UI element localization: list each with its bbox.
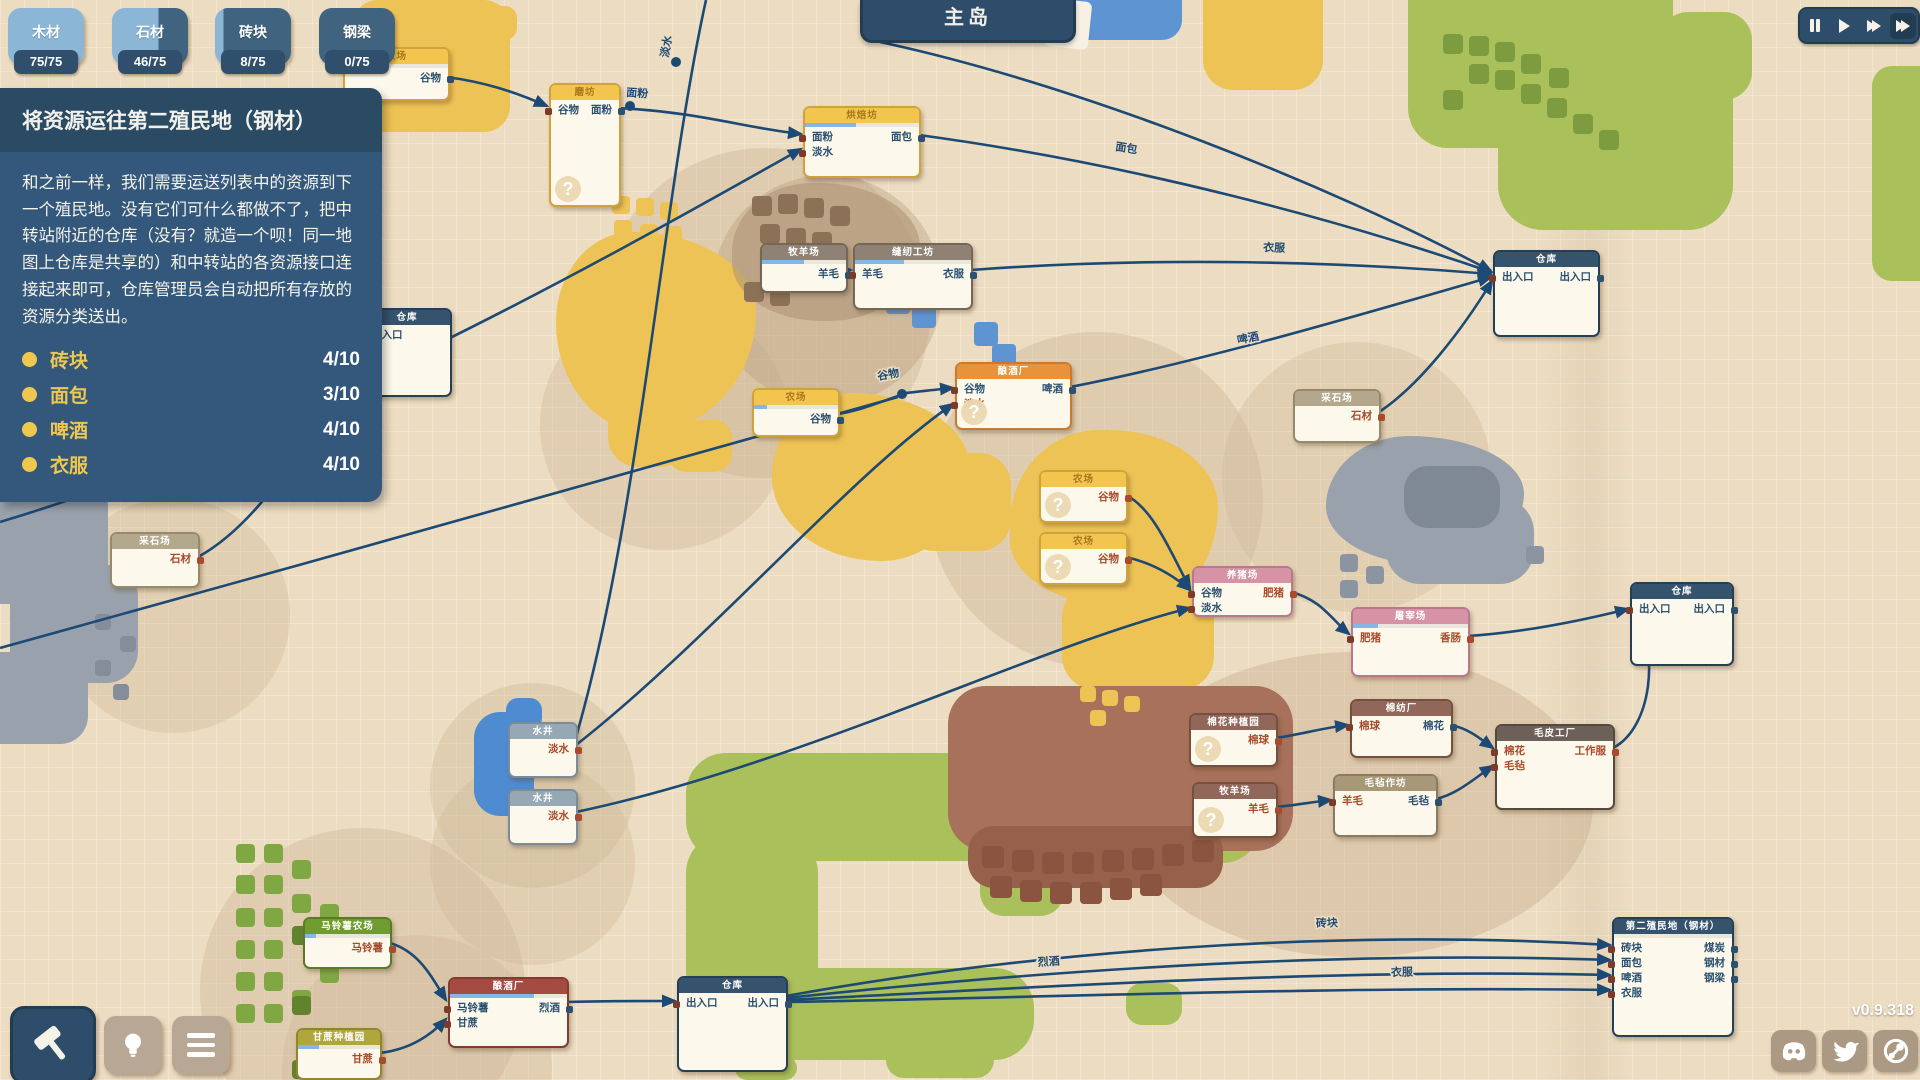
- node-row: 淡水: [805, 145, 919, 160]
- lightbulb-icon: [117, 1029, 149, 1061]
- resource-wire: [786, 940, 1610, 996]
- output-label: 煤炭: [1704, 941, 1725, 956]
- input-port[interactable]: [1346, 724, 1353, 731]
- goal-progress: 3/10: [323, 384, 360, 406]
- quest-goal-3: 衣服4/10: [22, 447, 360, 482]
- quest-description: 和之前一样，我们需要运送列表中的资源到下一个殖民地。没有它们可什么都做不了，把中…: [0, 152, 382, 336]
- node-sheepfarm-a[interactable]: 牧羊场羊毛: [760, 243, 848, 293]
- node-title: 甘蔗种植园: [298, 1030, 380, 1045]
- node-title: 农场: [1041, 472, 1126, 487]
- output-label: 工作服: [1575, 744, 1607, 759]
- output-port[interactable]: [1290, 591, 1297, 598]
- input-label: 羊毛: [1342, 794, 1363, 809]
- resource-wire: [567, 1001, 675, 1002]
- pause-button[interactable]: [1802, 13, 1828, 39]
- input-label: 出入口: [1639, 602, 1671, 617]
- node-row: 面包钢材: [1614, 956, 1732, 971]
- resource-wire: [446, 77, 547, 106]
- input-port[interactable]: [1188, 606, 1195, 613]
- output-label: 石材: [1351, 409, 1372, 424]
- menu-button[interactable]: [172, 1016, 230, 1074]
- input-label: 马铃薯: [457, 1001, 489, 1016]
- wire-junction: [897, 389, 907, 399]
- input-label: 淡水: [1201, 601, 1222, 616]
- goal-bullet-icon: [22, 352, 37, 367]
- output-label: 淡水: [548, 809, 569, 824]
- input-label: 出入口: [1502, 270, 1534, 285]
- output-port[interactable]: [837, 417, 844, 424]
- node-title: 毛皮工厂: [1497, 726, 1613, 741]
- input-port[interactable]: [1329, 799, 1336, 806]
- output-label: 啤酒: [1042, 382, 1063, 397]
- output-label: 钢材: [1704, 956, 1725, 971]
- wire-label: 烈酒: [1037, 953, 1060, 969]
- node-row: 砖块煤炭: [1614, 941, 1732, 956]
- node-title: 马铃薯农场: [305, 919, 390, 934]
- output-label: 棉球: [1248, 733, 1269, 748]
- output-port[interactable]: [1731, 946, 1738, 953]
- node-fur[interactable]: 毛皮工厂棉花工作服毛毡: [1495, 724, 1615, 810]
- node-title: 仓库: [1495, 252, 1598, 267]
- goal-bullet-icon: [22, 387, 37, 402]
- output-label: 香肠: [1440, 631, 1461, 646]
- node-row: 啤酒钢梁: [1614, 971, 1732, 986]
- question-icon: ?: [1198, 807, 1224, 833]
- resource-wire: [1126, 557, 1190, 590]
- output-port[interactable]: [1378, 414, 1385, 421]
- input-label: 出入口: [686, 996, 718, 1011]
- output-port[interactable]: [1731, 976, 1738, 983]
- output-label: 谷物: [1098, 490, 1119, 505]
- node-cotton-plant[interactable]: 棉花种植园棉球?: [1189, 713, 1278, 767]
- input-port[interactable]: [545, 108, 552, 115]
- input-label: 衣服: [1621, 986, 1642, 1001]
- node-title: 磨坊: [551, 85, 619, 100]
- node-title: 棉花种植园: [1191, 715, 1276, 730]
- node-title: 毛毡作坊: [1335, 776, 1436, 791]
- resource-wire: [971, 262, 1491, 274]
- resource-count: 8/75: [221, 50, 285, 74]
- goal-label: 砖块: [50, 346, 88, 373]
- input-port[interactable]: [849, 272, 856, 279]
- goal-label: 面包: [50, 381, 88, 408]
- output-label: 羊毛: [1248, 802, 1269, 817]
- output-label: 淡水: [548, 742, 569, 757]
- output-port[interactable]: [197, 557, 204, 564]
- node-cotton-mill[interactable]: 棉纺厂棉球棉花: [1350, 699, 1453, 758]
- resource-wire: [1468, 609, 1628, 636]
- version-label: v0.9.318: [1852, 1002, 1914, 1020]
- node-sugarcane[interactable]: 甘蔗种植园甘蔗: [296, 1028, 382, 1080]
- quest-goal-0: 砖块4/10: [22, 342, 360, 377]
- input-label: 羊毛: [862, 267, 883, 282]
- goal-label: 啤酒: [50, 416, 88, 443]
- node-title: 仓库: [679, 978, 786, 993]
- input-label: 面包: [1621, 956, 1642, 971]
- play-icon: [1839, 19, 1850, 33]
- quest-panel: 将资源运往第二殖民地（钢材） 和之前一样，我们需要运送列表中的资源到下一个殖民地…: [0, 88, 382, 502]
- quest-goal-1: 面包3/10: [22, 377, 360, 412]
- node-row: 淡水: [510, 809, 576, 824]
- input-port[interactable]: [444, 1021, 451, 1028]
- node-well-b[interactable]: 水井淡水: [508, 789, 578, 845]
- node-row: 出入口出入口: [1495, 270, 1598, 285]
- hint-button[interactable]: [104, 1016, 162, 1074]
- output-label: 衣服: [943, 267, 964, 282]
- node-title: 烘焙坊: [805, 108, 919, 123]
- quest-goals: 砖块4/10面包3/10啤酒4/10衣服4/10: [0, 336, 382, 502]
- goal-label: 衣服: [50, 451, 88, 478]
- node-row: 出入口出入口: [679, 996, 786, 1011]
- island-name-banner[interactable]: 主岛: [860, 0, 1076, 43]
- pause-icon: [1810, 19, 1814, 32]
- resource-wire: [1276, 800, 1331, 807]
- speed-controls: [1798, 7, 1920, 44]
- game-map[interactable]: 面粉面包衣服啤酒谷物淡水烈酒砖块衣服 农场谷物磨坊谷物面粉?烘焙坊面粉面包淡水牧…: [0, 0, 1920, 1080]
- build-button[interactable]: [10, 1006, 96, 1080]
- resource-name: 木材: [8, 22, 84, 42]
- node-row: 衣服: [1614, 986, 1732, 1001]
- input-label: 面粉: [812, 130, 833, 145]
- node-title: 屠宰场: [1353, 609, 1468, 624]
- input-label: 棉花: [1504, 744, 1525, 759]
- node-title: 水井: [510, 724, 576, 739]
- output-port[interactable]: [1125, 557, 1132, 564]
- input-port[interactable]: [1608, 976, 1615, 983]
- resource-wire: [1276, 725, 1348, 738]
- node-slaughter[interactable]: 屠宰场肥猪香肠: [1351, 607, 1470, 677]
- output-label: 谷物: [1098, 552, 1119, 567]
- steam-icon: [1881, 1036, 1911, 1066]
- node-warehouse-c[interactable]: 仓库出入口出入口: [1630, 582, 1734, 666]
- node-row: 甘蔗: [298, 1052, 380, 1067]
- resource-name: 砖块: [215, 22, 291, 42]
- output-label: 石材: [170, 552, 191, 567]
- output-label: 棉花: [1423, 719, 1444, 734]
- node-brewery[interactable]: 酿酒厂谷物啤酒淡水?: [955, 362, 1072, 430]
- wire-label: 淡水: [657, 33, 675, 58]
- input-label: 肥猪: [1360, 631, 1381, 646]
- output-label: 出入口: [1560, 270, 1592, 285]
- output-port[interactable]: [785, 1001, 792, 1008]
- question-icon: ?: [961, 399, 987, 425]
- node-title: 养猪场: [1194, 568, 1291, 583]
- node-row: 马铃薯烈酒: [450, 1001, 567, 1016]
- output-port[interactable]: [918, 135, 925, 142]
- goal-progress: 4/10: [323, 454, 360, 476]
- wire-label: 衣服: [1391, 965, 1414, 979]
- input-port[interactable]: [799, 150, 806, 157]
- wire-label: 衣服: [1263, 240, 1286, 255]
- input-label: 淡水: [812, 145, 833, 160]
- node-bakery[interactable]: 烘焙坊面粉面包淡水: [803, 106, 921, 178]
- output-port[interactable]: [1275, 738, 1282, 745]
- input-label: 砖块: [1621, 941, 1642, 956]
- output-label: 毛毡: [1408, 794, 1429, 809]
- input-label: 毛毡: [1504, 759, 1525, 774]
- node-well-a[interactable]: 水井淡水: [508, 722, 578, 778]
- question-icon: ?: [1045, 554, 1071, 580]
- node-row: 肥猪香肠: [1353, 631, 1468, 646]
- input-port[interactable]: [1491, 764, 1498, 771]
- node-title: 缝纫工坊: [855, 245, 971, 260]
- wire-label: 谷物: [876, 365, 900, 383]
- node-row: 羊毛: [762, 267, 846, 282]
- question-icon: ?: [1195, 736, 1221, 762]
- output-label: 谷物: [810, 412, 831, 427]
- resource-count: 0/75: [325, 50, 389, 74]
- node-farm-b[interactable]: 农场谷物: [752, 388, 840, 437]
- input-port[interactable]: [951, 402, 958, 409]
- wire-junction: [625, 101, 635, 111]
- node-row: 毛毡: [1497, 759, 1613, 774]
- node-row: 棉花工作服: [1497, 744, 1613, 759]
- input-port[interactable]: [1608, 991, 1615, 998]
- resource-wire: [390, 943, 446, 1000]
- resource-wire: [919, 135, 1491, 272]
- output-port[interactable]: [566, 1006, 573, 1013]
- node-quarry-a[interactable]: 采石场石材: [110, 532, 200, 588]
- node-felt[interactable]: 毛毡作坊羊毛毛毡: [1333, 774, 1438, 837]
- quest-goal-2: 啤酒4/10: [22, 412, 360, 447]
- twitter-icon: [1831, 1037, 1859, 1065]
- output-label: 烈酒: [539, 1001, 560, 1016]
- resource-wire: [786, 989, 1610, 1002]
- node-title: 棉纺厂: [1352, 701, 1451, 716]
- node-mill[interactable]: 磨坊谷物面粉?: [549, 83, 621, 207]
- output-port[interactable]: [447, 76, 454, 83]
- resource-wire: [576, 608, 1190, 812]
- output-port[interactable]: [1467, 636, 1474, 643]
- goal-bullet-icon: [22, 457, 37, 472]
- input-port[interactable]: [1347, 636, 1354, 643]
- wire-junction: [671, 57, 681, 67]
- node-pigfarm[interactable]: 养猪场谷物肥猪淡水: [1192, 566, 1293, 617]
- resource-wire: [1451, 725, 1493, 748]
- input-label: 棉球: [1359, 719, 1380, 734]
- resource-wire: [1436, 766, 1493, 799]
- fast-forward-max-button[interactable]: [1890, 13, 1916, 39]
- resource-count: 46/75: [118, 50, 182, 74]
- discord-button[interactable]: [1771, 1030, 1816, 1072]
- node-potato-farm[interactable]: 马铃薯农场马铃薯: [303, 917, 392, 969]
- node-row: 出入口出入口: [1632, 602, 1732, 617]
- output-label: 羊毛: [818, 267, 839, 282]
- output-label: 出入口: [1694, 602, 1726, 617]
- output-port[interactable]: [1275, 807, 1282, 814]
- wire-label: 面包: [1115, 139, 1139, 156]
- input-port[interactable]: [673, 1001, 680, 1008]
- node-row: 谷物面粉: [551, 103, 619, 118]
- node-row: 谷物肥猪: [1194, 586, 1291, 601]
- node-title: 采石场: [112, 534, 198, 549]
- input-label: 谷物: [964, 382, 985, 397]
- output-port[interactable]: [618, 108, 625, 115]
- node-title: 酿酒厂: [957, 364, 1070, 379]
- hamburger-icon: [187, 1033, 215, 1038]
- question-icon: ?: [555, 176, 581, 202]
- input-port[interactable]: [799, 135, 806, 142]
- node-title: 仓库: [1632, 584, 1732, 599]
- node-distillery[interactable]: 酿酒厂马铃薯烈酒甘蔗: [448, 977, 569, 1048]
- node-row: 淡水: [510, 742, 576, 757]
- node-row: 石材: [1295, 409, 1379, 424]
- output-label: 肥猪: [1263, 586, 1284, 601]
- output-port[interactable]: [575, 814, 582, 821]
- node-title: 第二殖民地（钢材）: [1614, 919, 1732, 934]
- goal-progress: 4/10: [323, 419, 360, 441]
- output-port[interactable]: [1597, 275, 1604, 282]
- node-row: 谷物: [754, 412, 838, 427]
- output-label: 甘蔗: [352, 1052, 373, 1067]
- question-icon: ?: [1045, 492, 1071, 518]
- output-label: 面包: [891, 130, 912, 145]
- node-row: 面粉面包: [805, 130, 919, 145]
- output-port[interactable]: [1731, 961, 1738, 968]
- quest-title: 将资源运往第二殖民地（钢材）: [0, 88, 382, 152]
- play-button[interactable]: [1831, 13, 1857, 39]
- node-title: 酿酒厂: [450, 979, 567, 994]
- output-port[interactable]: [1450, 724, 1457, 731]
- input-label: 甘蔗: [457, 1016, 478, 1031]
- node-row: 棉球棉花: [1352, 719, 1451, 734]
- node-warehouse-d[interactable]: 仓库出入口出入口: [677, 976, 788, 1072]
- output-port[interactable]: [1435, 799, 1442, 806]
- goal-progress: 4/10: [323, 349, 360, 371]
- goal-bullet-icon: [22, 422, 37, 437]
- resource-wire: [1291, 592, 1349, 634]
- input-port[interactable]: [1608, 961, 1615, 968]
- output-port[interactable]: [1731, 607, 1738, 614]
- input-port[interactable]: [951, 387, 958, 394]
- resource-wire: [380, 1019, 446, 1053]
- discord-icon: [1779, 1036, 1809, 1066]
- wire-label: 砖块: [1316, 915, 1339, 930]
- output-port[interactable]: [379, 1057, 386, 1064]
- output-label: 谷物: [420, 71, 441, 86]
- node-title: 牧羊场: [1194, 784, 1276, 799]
- output-port[interactable]: [1125, 495, 1132, 502]
- input-port[interactable]: [1608, 946, 1615, 953]
- node-title: 采石场: [1295, 391, 1379, 406]
- output-port[interactable]: [1069, 387, 1076, 394]
- node-title: 牧羊场: [762, 245, 846, 260]
- steam-button[interactable]: [1873, 1030, 1918, 1072]
- node-row: 石材: [112, 552, 198, 567]
- resource-wire: [617, 108, 801, 134]
- node-row: 羊毛毛毡: [1335, 794, 1436, 809]
- node-row: 淡水: [1194, 601, 1291, 616]
- input-label: 谷物: [558, 103, 579, 118]
- resource-wire: [576, 404, 953, 745]
- node-colony[interactable]: 第二殖民地（钢材）砖块煤炭面包钢材啤酒钢梁衣服: [1612, 917, 1734, 1037]
- resource-wire: [1126, 495, 1190, 588]
- node-title: 农场: [1041, 534, 1126, 549]
- resource-wire: [906, 388, 953, 393]
- output-port[interactable]: [970, 272, 977, 279]
- output-label: 出入口: [748, 996, 780, 1011]
- node-title: 农场: [754, 390, 838, 405]
- node-quarry-b[interactable]: 采石场石材: [1293, 389, 1381, 443]
- node-row: 甘蔗: [450, 1016, 567, 1031]
- output-port[interactable]: [575, 747, 582, 754]
- resource-wire: [1070, 277, 1491, 387]
- input-port[interactable]: [1188, 591, 1195, 598]
- resource-count: 75/75: [14, 50, 78, 74]
- output-port[interactable]: [389, 946, 396, 953]
- node-farm-d[interactable]: 农场谷物?: [1039, 532, 1128, 585]
- node-row: 羊毛衣服: [855, 267, 971, 282]
- wire-label: 面粉: [626, 85, 649, 101]
- node-sheepfarm-b[interactable]: 牧羊场羊毛?: [1192, 782, 1278, 838]
- resource-wire: [880, 42, 1491, 271]
- node-row: 马铃薯: [305, 941, 390, 956]
- node-row: 谷物啤酒: [957, 382, 1070, 397]
- input-label: 谷物: [1201, 586, 1222, 601]
- node-title: 水井: [510, 791, 576, 806]
- output-label: 面粉: [591, 103, 612, 118]
- output-label: 钢梁: [1704, 971, 1725, 986]
- input-port[interactable]: [1626, 607, 1633, 614]
- fast-forward-button[interactable]: [1861, 13, 1887, 39]
- input-port[interactable]: [444, 1006, 451, 1013]
- resource-name: 钢梁: [319, 22, 395, 42]
- node-farm-c[interactable]: 农场谷物?: [1039, 470, 1128, 523]
- output-label: 马铃薯: [352, 941, 384, 956]
- input-label: 啤酒: [1621, 971, 1642, 986]
- hammer-icon: [30, 1022, 76, 1068]
- twitter-button[interactable]: [1822, 1030, 1867, 1072]
- node-sewing[interactable]: 缝纫工坊羊毛衣服: [853, 243, 973, 310]
- output-port[interactable]: [1612, 749, 1619, 756]
- resource-wire: [1379, 281, 1492, 412]
- resource-name: 石材: [112, 22, 188, 42]
- node-warehouse-a[interactable]: 仓库出入口出入口: [1493, 250, 1600, 337]
- input-port[interactable]: [1489, 275, 1496, 282]
- input-port[interactable]: [1491, 749, 1498, 756]
